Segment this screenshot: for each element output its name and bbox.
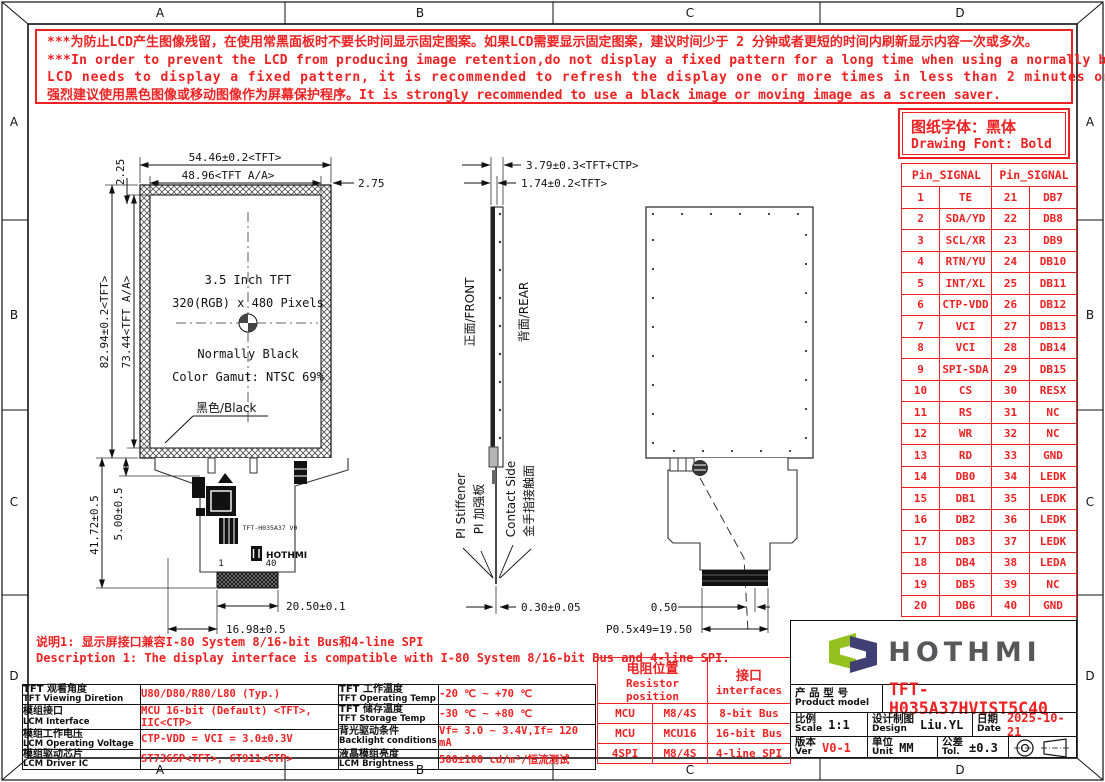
unit-cell: 单位 Unit MM [867,736,937,758]
spec-label: 模组工作电压 LCM Operating Voltage [23,729,141,749]
zone-label: B [10,308,18,322]
projection-cell [1008,736,1077,758]
pin-number-cell: 3 [902,230,940,252]
pin-number-cell: 29 [992,359,1030,381]
rear-view-dimensions: 0.50 P0.5x49=19.50 [606,588,770,636]
pin-number-cell: 33 [992,445,1030,467]
pin-table-row: 17 DB3 37 LEDK [902,531,1077,553]
pin-signal-cell: DB14 [1030,337,1077,359]
pin-signal-cell: DB13 [1030,316,1077,338]
pin-signal-cell: SDA/YD [940,208,992,230]
pin-number-cell: 34 [992,466,1030,488]
resistor-code-cell: M8/4S [653,704,708,724]
pin-signal-cell: DB8 [1030,208,1077,230]
resistor-row: MCU MCU16 16-bit Bus [598,724,791,744]
spec-row: 背光驱动条件 Backlight conditions Vf= 3.0 ~ 3.… [339,724,596,749]
dim-width-aa: 48.96<TFT A/A> [182,169,275,182]
panel-resolution-label: 320(RGB) x 480 Pixels [172,296,324,310]
zone-label: D [9,669,18,683]
pin-table-row: 7 VCI 27 DB13 [902,316,1077,338]
pin-signal-cell: LEDK [1030,531,1077,553]
pin-table-row: 20 DB6 40 GND [902,595,1077,617]
pin-table-row: 4 RTN/YU 24 DB10 [902,251,1077,273]
pi-stiffener-label-en: PI Stiffener [454,473,468,539]
hothmi-logo-icon [826,630,880,676]
pin1-label: 1 [218,559,223,569]
pin-signal-cell: NC [1030,574,1077,596]
resistor-position-cell: MCU [598,724,653,744]
pin-signal-cell: DB7 [1030,187,1077,209]
image-retention-warning: ***为防止LCD产生图像残留，在使用常黑面板时不要长时间显示固定图案。如果LC… [35,29,1073,104]
pin-number-cell: 31 [992,402,1030,424]
pin-signal-cell: LEDA [1030,552,1077,574]
panel-size-label: 3.5 Inch TFT [205,273,292,287]
dim-height-aa: 73.44<TFT A/A> [120,275,133,368]
resistor-position-cell: MCU [598,704,653,724]
product-model-value-cell: TFT-H035A37HVIST5C40 [882,684,1077,712]
zone-label: D [955,763,964,777]
pin-signal-cell: NC [1030,423,1077,445]
pin-signal-cell: DB4 [940,552,992,574]
resistor-header: 电阻位置 Resistor position [598,658,708,704]
pin-signal-cell: RS [940,402,992,424]
pin-signal-cell: DB0 [940,466,992,488]
dim-fpc-length: 41.72±0.5 [88,495,101,555]
product-model-label-cell: 产 品 型 号 Product model [790,684,882,712]
pin-number-cell: 19 [902,574,940,596]
pin-number-cell: 1 [902,187,940,209]
pin-number-cell: 21 [992,187,1030,209]
pin-number-cell: 35 [992,488,1030,510]
third-angle-projection-icon [1014,738,1072,758]
spec-label: TFT 工作温度 TFT Operating Temp [339,685,439,705]
pin-signal-cell: VCI [940,316,992,338]
title-block: HOTHMI 产 品 型 号 Product model TFT-H035A37… [790,620,1077,758]
dim-top-margin: 2.25 [114,159,127,186]
pin-number-cell: 15 [902,488,940,510]
front-side-label: 正面/FRONT [463,277,477,347]
resistor-row: MCU M8/4S 8-bit Bus [598,704,791,724]
spec-value: -20 ℃ ~ +70 ℃ [439,685,596,705]
interface-cell: 16-bit Bus [708,724,791,744]
pin-signal-cell: DB1 [940,488,992,510]
dim-width-tft: 54.46±0.2<TFT> [189,151,282,164]
date-cell: 日期 Date 2025-10-21 [972,712,1077,736]
dim-fpc-thickness: 0.30±0.05 [521,601,581,614]
pin-number-cell: 5 [902,273,940,295]
pin-table-row: 1 TE 21 DB7 [902,187,1077,209]
pin-number-cell: 8 [902,337,940,359]
spec-row: 模组驱动芯片 LCM Driver IC ST7365P<TFT>, GT911… [23,749,339,769]
spec-row: TFT 储存温度 TFT Storage Temp -30 ℃ ~ +80 ℃ [339,704,596,724]
date-value: 2025-10-21 [1001,711,1077,739]
fpc-marking: TFT-H035A37 V0 [243,524,298,532]
warning-line-en2: LCD needs to display a fixed pattern, it… [47,69,1061,87]
zone-label: C [1086,495,1094,509]
warning-line-en1: ***In order to prevent the LCD from prod… [47,52,1061,70]
pin-number-cell: 6 [902,294,940,316]
pin-table-row: 14 DB0 34 LEDK [902,466,1077,488]
pin-table-row: 18 DB4 38 LEDA [902,552,1077,574]
pin-signal-cell: DB11 [1030,273,1077,295]
pin-signal-cell: DB10 [1030,251,1077,273]
pin-signal-cell: DB9 [1030,230,1077,252]
pin-number-cell: 4 [902,251,940,273]
spec-label: TFT 储存温度 TFT Storage Temp [339,704,439,724]
pin-signal-cell: RD [940,445,992,467]
pin-table-row: 5 INT/XL 25 DB11 [902,273,1077,295]
pin-number-cell: 7 [902,316,940,338]
pin-number-cell: 25 [992,273,1030,295]
zone-label: A [156,6,165,20]
pin-signal-cell: DB3 [940,531,992,553]
pin-table-row: 3 SCL/XR 23 DB9 [902,230,1077,252]
pin-number-cell: 30 [992,380,1030,402]
design-cell: 设计制图 Design Liu.YL [867,712,972,736]
black-color-callout: 黑色/Black [196,401,257,415]
tolerance-cell: 公差 Tol. ±0.3 [937,736,1008,758]
pin-signal-cell: TE [940,187,992,209]
spec-label: TFT 观看角度 TFT Viewing Diretion [23,685,141,705]
pin-number-cell: 9 [902,359,940,381]
resistor-position-cell: 4SPI [598,744,653,764]
pin-number-cell: 11 [902,402,940,424]
pin-table-row: 13 RD 33 GND [902,445,1077,467]
pin-number-cell: 18 [902,552,940,574]
warning-line-cn: ***为防止LCD产生图像残留，在使用常黑面板时不要长时间显示固定图案。如果LC… [47,34,1061,52]
pin-table-header-left: Pin_SIGNAL [902,164,992,187]
pin-number-cell: 40 [992,595,1030,617]
spec-value: -30 ℃ ~ +80 ℃ [439,704,596,724]
pin-signal-cell: DB2 [940,509,992,531]
dim-tft-thickness: 1.74±0.2<TFT> [521,177,607,190]
version-value: V0-1 [816,741,851,755]
pin-table-row: 19 DB5 39 NC [902,574,1077,596]
pin-number-cell: 17 [902,531,940,553]
spec-table-left: TFT 观看角度 TFT Viewing Diretion U80/D80/R8… [22,684,339,770]
spec-label: 模组驱动芯片 LCM Driver IC [23,749,141,769]
pin-number-cell: 24 [992,251,1030,273]
pin-number-cell: 20 [902,595,940,617]
pin-signal-cell: LEDK [1030,488,1077,510]
logo-cell: HOTHMI [790,620,1077,684]
dim-right-margin: 2.75 [358,177,385,190]
rear-side-label: 背面/REAR [517,282,531,343]
spec-value: MCU 16-bit (Default) <TFT>, IIC<CTP> [141,704,339,729]
pin40-label: 40 [266,559,277,569]
font-note-en: Drawing Font: Bold [911,137,1065,152]
resistor-position-table: 电阻位置 Resistor position 接口 interfaces MCU… [597,657,791,764]
pin-number-cell: 28 [992,337,1030,359]
pin-table-row: 15 DB1 35 LEDK [902,488,1077,510]
pin-table-row: 2 SDA/YD 22 DB8 [902,208,1077,230]
pin-signal-cell: DB6 [940,595,992,617]
zone-label: D [955,6,964,20]
pin-table-header-right: Pin_SIGNAL [992,164,1077,187]
zone-label: C [686,6,694,20]
dim-panel-to-fpc: 5.00±0.5 [112,488,125,541]
pin-number-cell: 26 [992,294,1030,316]
pin-signal-cell: GND [1030,445,1077,467]
pin-number-cell: 37 [992,531,1030,553]
pin-number-cell: 12 [902,423,940,445]
design-value: Liu.YL [914,718,963,732]
pin-table-row: 8 VCI 28 DB14 [902,337,1077,359]
spec-value: U80/D80/R80/L80 (Typ.) [141,685,339,705]
pin-number-cell: 22 [992,208,1030,230]
pin-number-cell: 32 [992,423,1030,445]
scale-value: 1:1 [822,718,850,732]
pi-stiffener-label-cn: PI 加强板 [472,484,486,535]
note-line-cn: 说明1: 显示屏接口兼容I-80 System 8/16-bit Bus和4-l… [36,634,730,650]
spec-row: TFT 观看角度 TFT Viewing Diretion U80/D80/R8… [23,685,339,705]
zone-label: A [10,115,19,129]
spec-value: CTP-VDD = VCI = 3.0±0.3V [141,729,339,749]
panel-mode-label: Normally Black [197,347,299,361]
resistor-code-cell: M8/4S [653,744,708,764]
spec-label: 背光驱动条件 Backlight conditions [339,724,439,749]
pin-table-row: 12 WR 32 NC [902,423,1077,445]
pin-signal-cell: GND [1030,595,1077,617]
font-note-cn: 图纸字体：黑体 [911,116,1065,137]
pin-signal-cell: VCI [940,337,992,359]
resistor-row: 4SPI M8/4S 4-line SPI [598,744,791,764]
pin-signal-cell: DB5 [940,574,992,596]
pin-number-cell: 16 [902,509,940,531]
zone-label: D [1085,669,1094,683]
resistor-code-cell: MCU16 [653,724,708,744]
pin-number-cell: 38 [992,552,1030,574]
pin-number-cell: 10 [902,380,940,402]
spec-value: ST7365P<TFT>, GT911<CTP> [141,749,339,769]
pin-number-cell: 13 [902,445,940,467]
pin-signal-cell: LEDK [1030,509,1077,531]
spec-value: 500±100 cd/m²/恒流测试 [439,749,596,769]
zone-label: B [416,6,424,20]
spec-table-middle: TFT 工作温度 TFT Operating Temp -20 ℃ ~ +70 … [338,684,596,770]
pin-signal-cell: INT/XL [940,273,992,295]
pin-signal-cell: RESX [1030,380,1077,402]
zone-label: C [686,763,694,777]
pin-signal-cell: DB15 [1030,359,1077,381]
spec-row: TFT 工作温度 TFT Operating Temp -20 ℃ ~ +70 … [339,685,596,705]
pin-signal-cell: CTP-VDD [940,294,992,316]
drawing-font-note: 图纸字体：黑体 Drawing Font: Bold [898,108,1070,159]
pin-table-row: 9 SPI-SDA 29 DB15 [902,359,1077,381]
spec-label: 液晶模组亮度 LCM Brightness [339,749,439,769]
pin-number-cell: 36 [992,509,1030,531]
pin-signal-cell: SPI-SDA [940,359,992,381]
scale-cell: 比例 Scale 1:1 [790,712,867,736]
version-cell: 版本 Ver V0-1 [790,736,867,758]
pin-signal-cell: LEDK [1030,466,1077,488]
front-view: 3.5 Inch TFT 320(RGB) x 480 Pixels Norma… [140,185,348,588]
pin-table-row: 6 CTP-VDD 26 DB12 [902,294,1077,316]
spec-row: 模组工作电压 LCM Operating Voltage CTP-VDD = V… [23,729,339,749]
contact-side-label-en: Contact Side [504,461,518,537]
dim-height-tft: 82.94±0.2<TFT> [98,275,111,368]
spec-row: 模组接口 LCM Interface MCU 16-bit (Default) … [23,704,339,729]
spec-label: 模组接口 LCM Interface [23,704,141,729]
pin-table-row: 11 RS 31 NC [902,402,1077,424]
interface-cell: 8-bit Bus [708,704,791,724]
pin-signal-cell: DB12 [1030,294,1077,316]
zone-label: B [1086,308,1094,322]
pin-number-cell: 14 [902,466,940,488]
pin-signal-cell: NC [1030,402,1077,424]
pin-signal-table: Pin_SIGNAL Pin_SIGNAL 1 TE 21 DB7 2 SDA/… [901,163,1077,617]
hothmi-logo-text: HOTHMI [888,637,1041,668]
panel-gamut-label: Color Gamut: NTSC 69% [172,370,324,384]
pin-number-cell: 2 [902,208,940,230]
pin-number-cell: 27 [992,316,1030,338]
zone-label: C [10,495,18,509]
spec-value: Vf= 3.0 ~ 3.4V,If= 120 mA [439,724,596,749]
pin-signal-cell: RTN/YU [940,251,992,273]
dim-pitch-offset: 0.50 [651,601,678,614]
pin-signal-cell: WR [940,423,992,445]
warning-line-mixed: 强烈建议使用黑色图像或移动图像作为屏幕保护程序。It is strongly r… [47,87,1061,105]
pin-table-row: 16 DB2 36 LEDK [902,509,1077,531]
spec-row: 液晶模组亮度 LCM Brightness 500±100 cd/m²/恒流测试 [339,749,596,769]
pin-number-cell: 39 [992,574,1030,596]
dim-connector-width: 20.50±0.1 [286,600,346,613]
interface-cell: 4-line SPI [708,744,791,764]
rear-view [646,207,813,632]
engineering-drawing-sheet: A B C D A B C D A B C D A B C D 3.5 Inch… [0,0,1105,782]
pin-table-row: 10 CS 30 RESX [902,380,1077,402]
interface-header: 接口 interfaces [708,658,791,704]
pin-signal-cell: CS [940,380,992,402]
pin-number-cell: 23 [992,230,1030,252]
contact-side-label-cn: 金手指接触面 [521,465,536,537]
unit-value: MM [893,741,913,755]
pin-signal-cell: SCL/XR [940,230,992,252]
zone-label: A [1086,115,1095,129]
side-view: 正面/FRONT 背面/REAR PI Stiffener PI 加强板 Con… [454,207,536,584]
tolerance-value: ±0.3 [963,741,998,755]
dim-total-thickness: 3.79±0.3<TFT+CTP> [526,159,639,172]
side-view-dimensions: 3.79±0.3<TFT+CTP> 1.74±0.2<TFT> 0.30±0.0… [462,157,639,614]
